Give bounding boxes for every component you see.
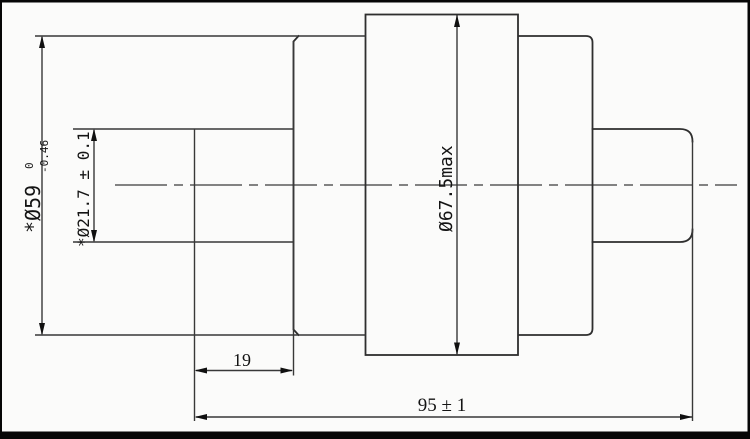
frame-top bbox=[0, 0, 750, 3]
dimension-dia67: Ø67.5max bbox=[436, 15, 460, 356]
right-hub-top bbox=[593, 129, 693, 142]
part-outline bbox=[294, 15, 693, 376]
dimension-dia21: *Ø21.7 ± 0.1 bbox=[74, 129, 97, 248]
arrow-down-icon bbox=[39, 323, 45, 336]
dim-label-dia67: Ø67.5max bbox=[436, 145, 457, 232]
arrow-left-icon bbox=[195, 368, 208, 374]
page-frame bbox=[0, 0, 750, 439]
dimension-19: 19 bbox=[195, 350, 294, 374]
dimension-95: 95 ± 1 bbox=[195, 395, 693, 420]
dim-label-dia21: *Ø21.7 ± 0.1 bbox=[74, 131, 93, 247]
technical-drawing-sheet: *Ø59 0 -0.46 *Ø21.7 ± 0.1 Ø67.5max bbox=[0, 0, 750, 439]
frame-left bbox=[0, 0, 2, 439]
dim-label-dia59: *Ø59 bbox=[21, 185, 45, 233]
arrow-right-icon bbox=[680, 414, 693, 420]
arrow-left-icon bbox=[195, 414, 208, 420]
arrow-up-icon bbox=[39, 36, 45, 49]
dim-label-19: 19 bbox=[233, 350, 251, 370]
drawing-canvas: *Ø59 0 -0.46 *Ø21.7 ± 0.1 Ø67.5max bbox=[0, 0, 750, 439]
right-hub-bottom bbox=[593, 230, 693, 243]
arrow-right-icon bbox=[281, 368, 294, 374]
arrow-down-icon bbox=[454, 343, 460, 356]
frame-bottom bbox=[0, 432, 750, 439]
dimension-dia59: *Ø59 0 -0.46 bbox=[21, 36, 51, 336]
dim-label-dia59-tol-upper: 0 bbox=[23, 162, 36, 169]
extension-lines bbox=[35, 36, 693, 421]
dim-label-dia59-tol-lower: -0.46 bbox=[38, 140, 51, 173]
dim-label-95: 95 ± 1 bbox=[418, 395, 466, 416]
arrow-up-icon bbox=[454, 15, 460, 28]
